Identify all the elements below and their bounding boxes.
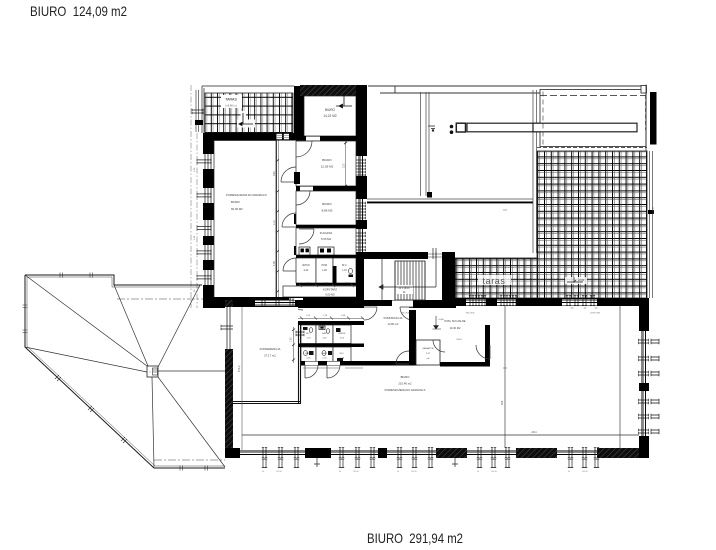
- svg-text:spb: spb: [583, 308, 586, 310]
- svg-text:UMYW.: UMYW.: [338, 333, 346, 335]
- svg-text:890 CKW: 890 CKW: [401, 313, 410, 315]
- svg-text:66,06 M2: 66,06 M2: [231, 207, 243, 211]
- svg-text:KOMUNIKACJA: KOMUNIKACJA: [384, 316, 403, 320]
- svg-text:1,95: 1,95: [291, 337, 293, 342]
- svg-text:180 90: 180 90: [276, 471, 282, 473]
- svg-text:12,80 m2: 12,80 m2: [388, 322, 399, 326]
- svg-text:KONFERENCJA: KONFERENCJA: [260, 347, 281, 351]
- svg-text:890 CKW: 890 CKW: [466, 313, 475, 315]
- svg-text:POM.: POM.: [321, 264, 327, 267]
- svg-text:873,2: 873,2: [237, 365, 241, 372]
- svg-text:180 90: 180 90: [582, 471, 588, 473]
- svg-text:906: 906: [500, 400, 504, 405]
- svg-text:1,00: 1,00: [322, 269, 327, 272]
- svg-text:(+6,60 m): (+6,60 m): [225, 104, 236, 108]
- svg-text:180 90: 180 90: [491, 471, 497, 473]
- svg-text:90: 90: [262, 471, 264, 473]
- svg-text:180 90: 180 90: [411, 471, 417, 473]
- svg-text:ŁAZ.: ŁAZ.: [322, 352, 327, 355]
- svg-text:3,30: 3,30: [344, 163, 346, 168]
- svg-text:1,14: 1,14: [273, 220, 276, 225]
- svg-text:8,86 M2: 8,86 M2: [322, 209, 333, 213]
- svg-text:W.C.: W.C.: [340, 353, 345, 355]
- svg-text:spb: spb: [570, 308, 573, 310]
- svg-text:UMYW.: UMYW.: [302, 264, 310, 267]
- svg-text:2,24: 2,24: [304, 269, 309, 272]
- svg-text:BIURO: BIURO: [401, 375, 411, 379]
- svg-text:243,4: 243,4: [456, 339, 462, 341]
- svg-text:1,10: 1,10: [342, 269, 347, 272]
- svg-text:90: 90: [397, 471, 399, 473]
- svg-text:BIURO 291,94 m2: BIURO 291,94 m2: [367, 530, 463, 546]
- svg-text:20 x 18,00: 20 x 18,00: [399, 288, 410, 290]
- svg-text:CKW CKW: CKW CKW: [590, 313, 600, 315]
- svg-text:3,64: 3,64: [273, 171, 276, 176]
- svg-text:W.C.: W.C.: [342, 264, 348, 267]
- svg-text:POM. SOCJALNE: POM. SOCJALNE: [444, 319, 465, 323]
- svg-text:taras: taras: [482, 276, 505, 286]
- svg-text:BIURO: BIURO: [322, 202, 332, 206]
- svg-text:spb: spb: [594, 308, 597, 310]
- svg-text:6,60 M2: 6,60 M2: [325, 293, 335, 297]
- svg-text:10,40 M2: 10,40 M2: [450, 326, 461, 330]
- svg-text:14,22 M2: 14,22 M2: [323, 114, 337, 118]
- svg-text:90: 90: [477, 471, 479, 473]
- svg-text:210,46 m2: 210,46 m2: [398, 382, 412, 386]
- svg-text:BIURO: BIURO: [322, 158, 332, 162]
- svg-text:TARAS: TARAS: [225, 98, 237, 102]
- svg-text:MAGAZYN: MAGAZYN: [423, 347, 434, 350]
- svg-text:872,5: 872,5: [651, 207, 655, 214]
- svg-text:W.C.: W.C.: [306, 333, 311, 335]
- svg-text:BIURO: BIURO: [231, 200, 241, 204]
- svg-text:BIURO 124,09 m2: BIURO 124,09 m2: [30, 3, 127, 19]
- svg-text:+6,60: +6,60: [578, 279, 585, 282]
- svg-text:90: 90: [568, 471, 570, 473]
- svg-text:12,05 M2: 12,05 M2: [321, 165, 334, 169]
- svg-text:KUCHNIA: KUCHNIA: [320, 231, 333, 235]
- svg-text:KORYTARZ: KORYTARZ: [323, 288, 337, 292]
- svg-text:27,17 m2: 27,17 m2: [264, 354, 276, 358]
- svg-text:2441: 2441: [531, 431, 537, 434]
- svg-text:BIURO: BIURO: [325, 108, 336, 112]
- svg-text:4,05: 4,05: [273, 261, 276, 266]
- svg-text:180 90: 180 90: [353, 471, 359, 473]
- svg-text:90: 90: [339, 471, 341, 473]
- svg-text:5,50 M2: 5,50 M2: [321, 237, 332, 241]
